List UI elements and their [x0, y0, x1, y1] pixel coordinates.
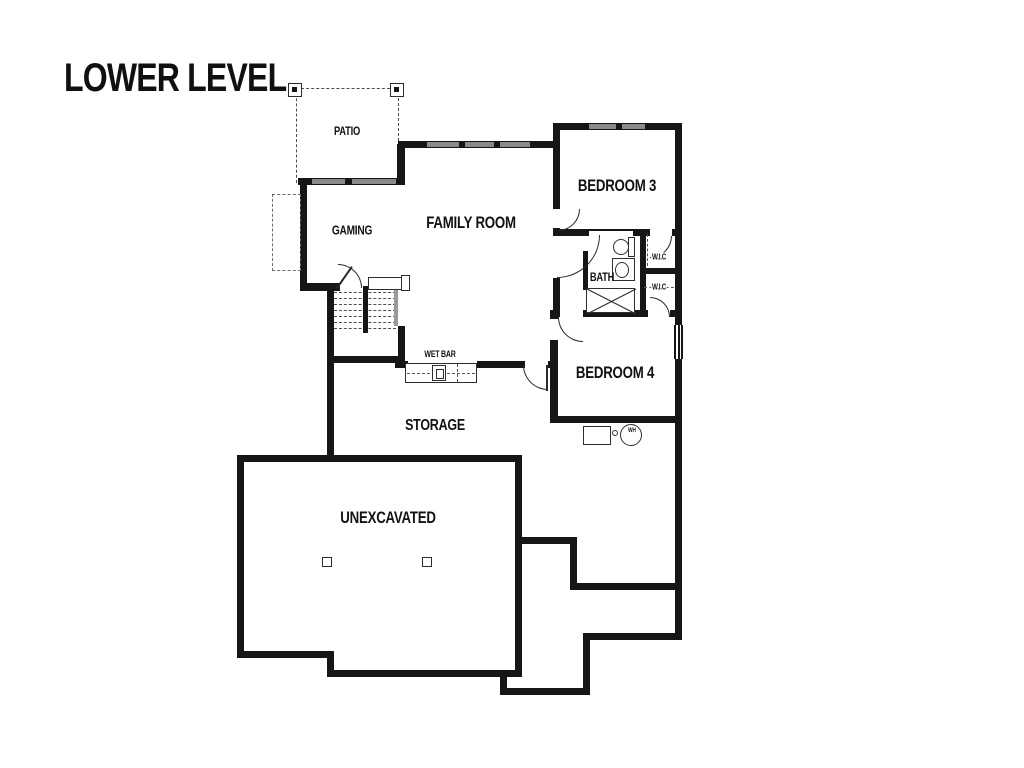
- wall-wetbar-corner: [548, 361, 558, 368]
- room-label-patio: PATIO: [334, 124, 360, 138]
- wall-patio-right: [397, 144, 405, 185]
- window-mullion: [494, 142, 500, 147]
- room-label-bedroom4: BEDROOM 4: [576, 363, 654, 383]
- shower: [586, 288, 635, 313]
- room-label-wic-lower: W.I.C: [651, 283, 667, 292]
- wall-gaming-bottom: [300, 283, 340, 291]
- patio-edge-left: [296, 88, 297, 183]
- wall-unexcavated-bottom-left: [237, 651, 334, 658]
- wall-corridor-north: [570, 583, 682, 590]
- door-arc-storage: [523, 365, 548, 390]
- wall-gaming-left: [300, 178, 307, 290]
- sliding-door: [352, 179, 396, 184]
- wetbar-sink-basin: [436, 369, 444, 379]
- stair-rail: [394, 288, 398, 326]
- room-label-bedroom3: BEDROOM 3: [578, 176, 656, 196]
- toilet-tank: [628, 237, 635, 257]
- patio-post-core: [292, 87, 297, 92]
- stair-newel: [401, 275, 410, 291]
- sliding-door: [312, 179, 345, 184]
- wall-mech-step-h: [515, 537, 577, 544]
- support-post: [422, 557, 432, 567]
- wall-corridor-south: [583, 633, 682, 640]
- door-arc-bedroom4: [558, 317, 583, 342]
- wall-bedroom4-bottom: [550, 416, 682, 423]
- room-label-bath: BATH: [590, 270, 614, 284]
- window-mullion: [459, 142, 465, 147]
- support-post: [322, 557, 332, 567]
- wall-storage-west: [327, 286, 334, 462]
- wall-unexcavated-left: [237, 455, 244, 658]
- wetbar-sink: [432, 365, 446, 381]
- water-heater: WH: [620, 424, 642, 446]
- stair-divider: [363, 286, 368, 333]
- room-label-wic-upper: W.I.C: [651, 253, 667, 262]
- wall-bedroom4-west: [550, 340, 558, 423]
- patio-post-core: [394, 87, 399, 92]
- window-mullion: [616, 124, 622, 129]
- bath-sink: [615, 262, 629, 278]
- wetbar-divider-dash: [457, 364, 458, 382]
- wall-unexcavated-top: [237, 455, 522, 462]
- window-well: [272, 194, 301, 271]
- room-label-storage: STORAGE: [405, 417, 465, 435]
- wall-right-lower: [675, 359, 682, 640]
- room-label-wet-bar: WET BAR: [424, 349, 455, 359]
- patio-edge-top: [296, 88, 400, 89]
- wall-bottom-low: [500, 688, 590, 695]
- stair-landing: [368, 277, 402, 290]
- wall-corridor-west: [583, 633, 590, 695]
- room-label-unexcavated: UNEXCAVATED: [340, 508, 435, 528]
- patio-post: [390, 83, 404, 97]
- door-arc-bedroom3: [558, 209, 580, 231]
- wall-unexcavated-bottom: [327, 670, 522, 677]
- wall-bedroom4-west-upper: [550, 310, 558, 319]
- toilet-niche-line: [589, 229, 633, 231]
- wall-wetbar-right: [477, 361, 525, 368]
- wall-right-upper: [675, 123, 682, 325]
- door-leaf-storage: [546, 365, 548, 391]
- room-label-family-room: FAMILY ROOM: [426, 213, 516, 233]
- page-title: LOWER LEVEL: [64, 56, 286, 101]
- wall-bedroom3-left: [553, 123, 560, 209]
- toilet-bowl: [613, 239, 629, 255]
- right-window-line: [674, 325, 676, 359]
- furnace: [583, 426, 611, 445]
- room-label-gaming: GAMING: [332, 223, 372, 238]
- right-window-line: [678, 325, 680, 359]
- water-heater-label: WH: [628, 428, 636, 434]
- door-arc-wic-lower: [650, 297, 670, 317]
- wall-stairs-bottom: [327, 356, 405, 363]
- right-window-line: [681, 325, 683, 359]
- furnace-knob: [612, 430, 618, 436]
- wall-mech-step-v: [570, 537, 577, 590]
- family-window: [427, 142, 530, 147]
- floor-plan: LOWER LEVEL PATIO: [0, 0, 1024, 768]
- patio-post: [288, 83, 302, 97]
- shower-x-pattern: [587, 289, 636, 314]
- wall-mech-west: [515, 455, 522, 677]
- wic-rod-dash: [647, 234, 648, 266]
